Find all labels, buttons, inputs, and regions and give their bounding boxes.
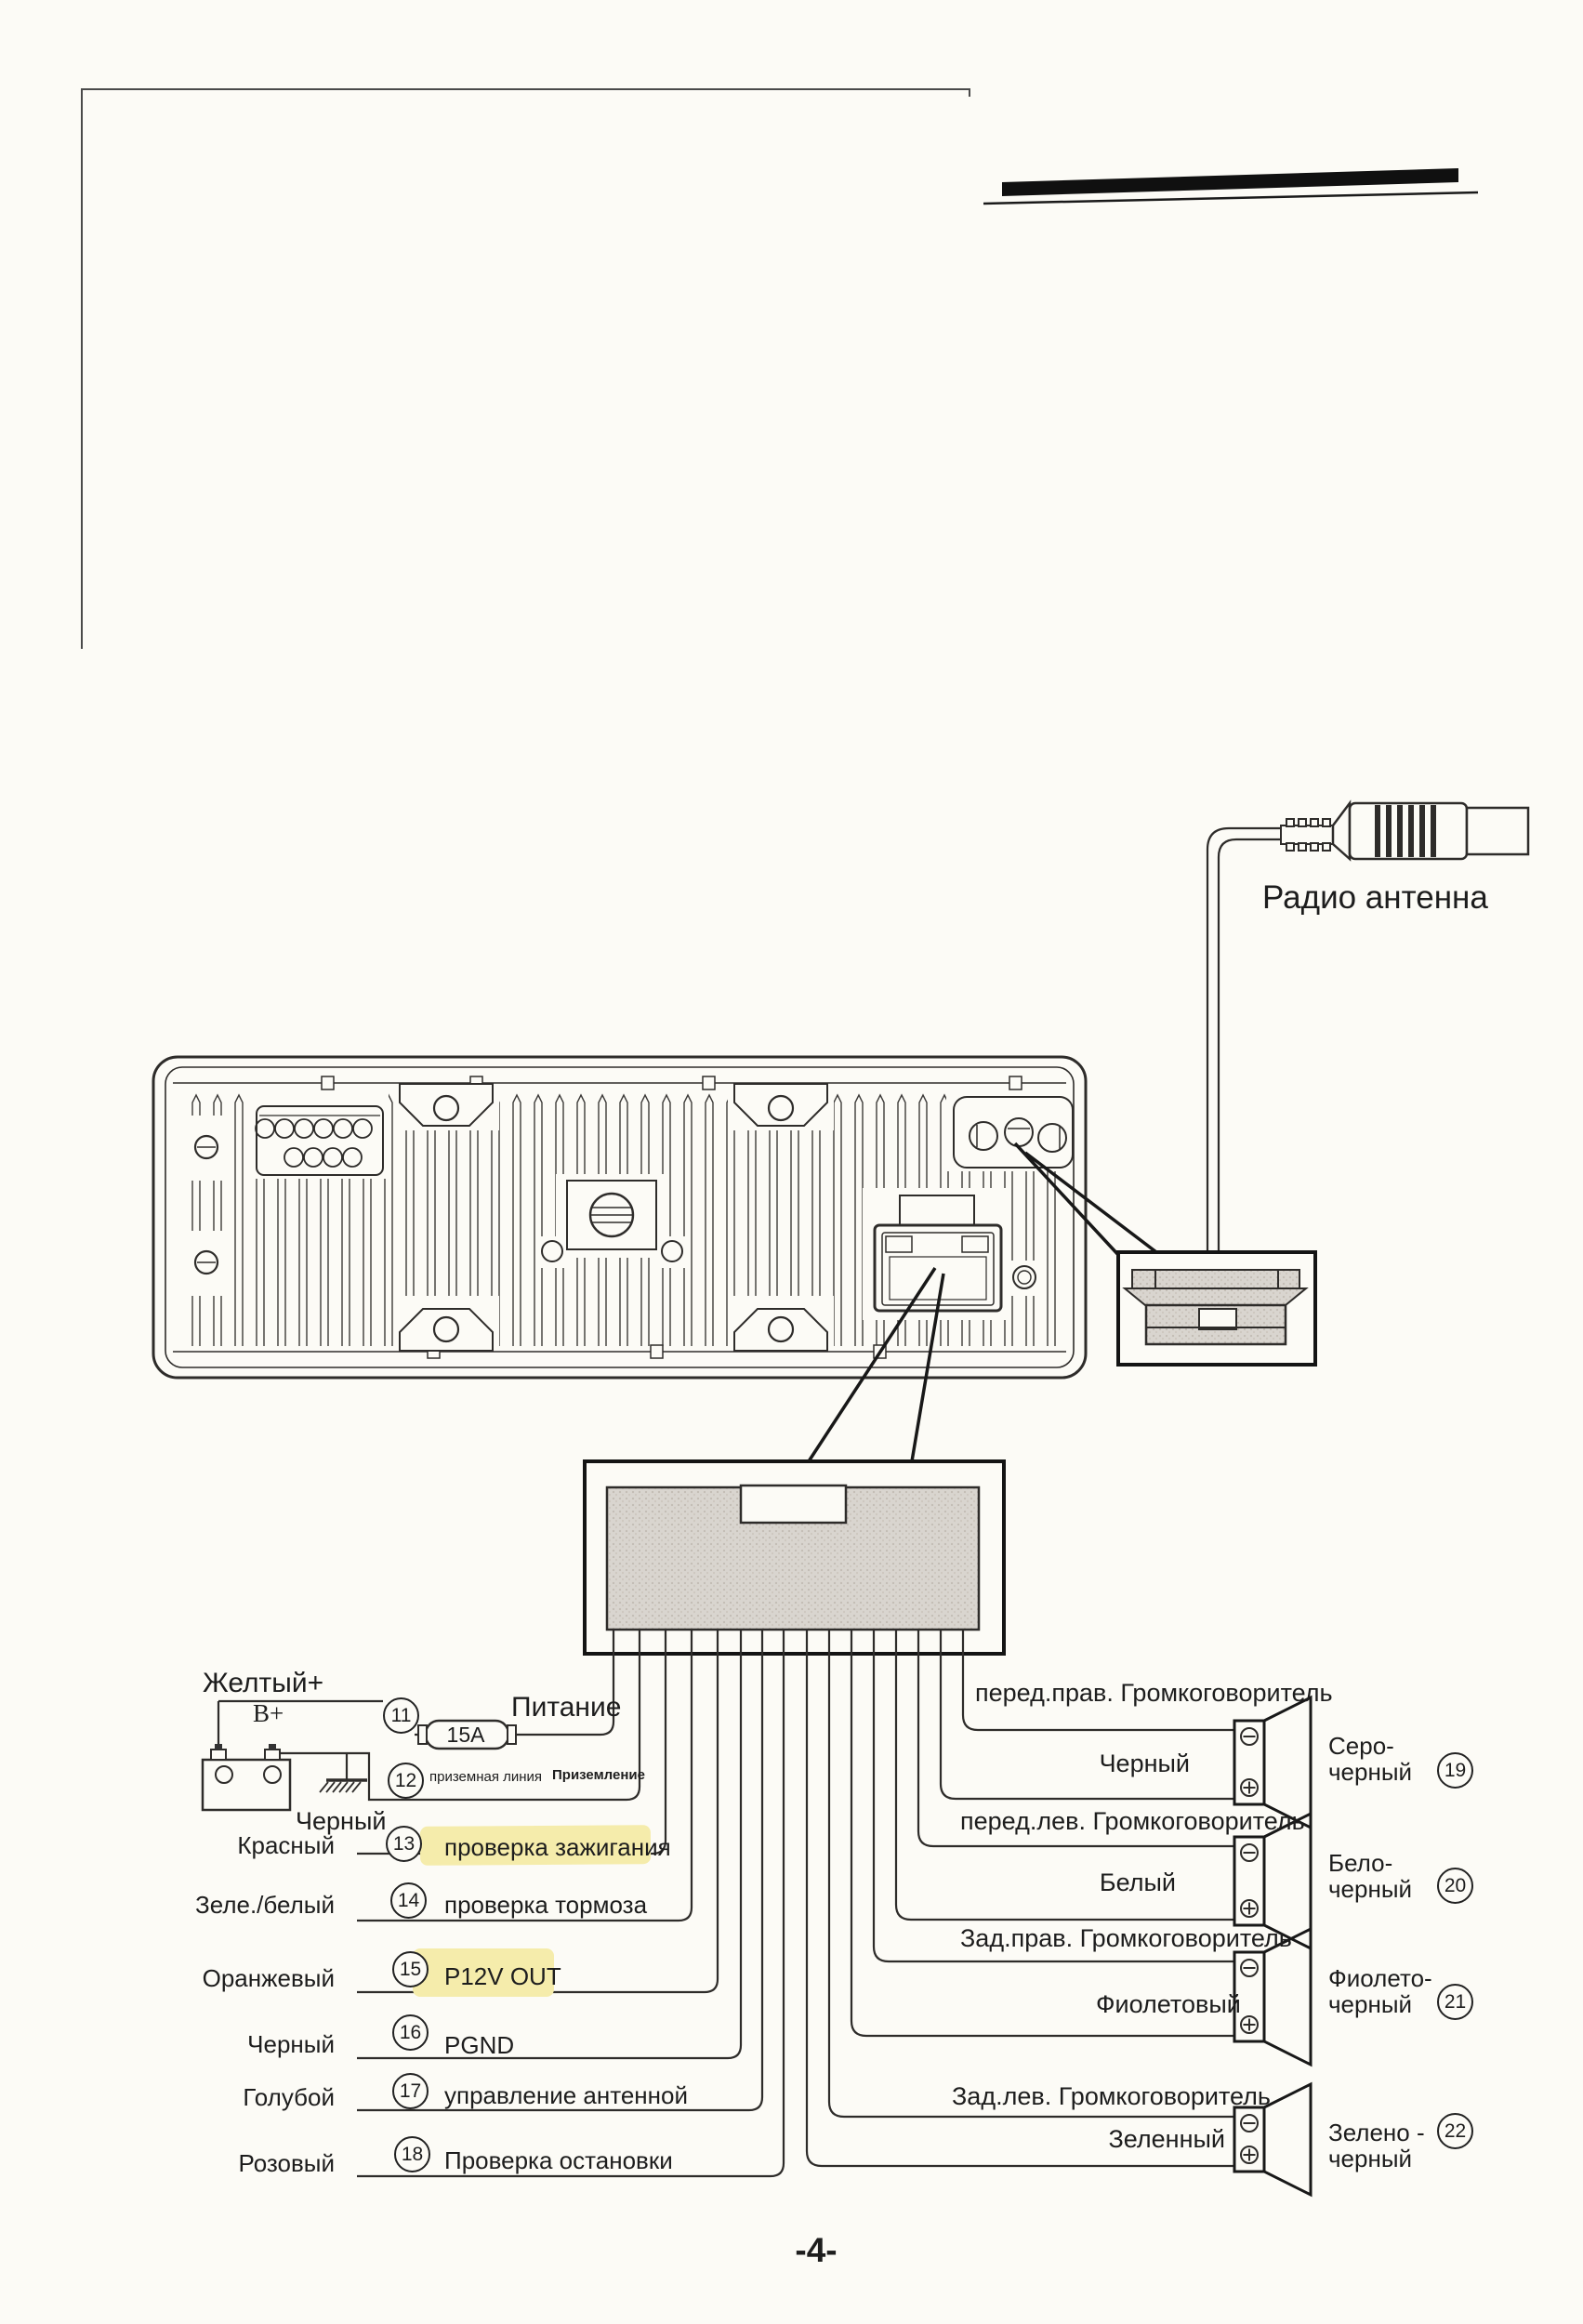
wire-number-22: 22 — [1437, 2113, 1473, 2149]
speaker-combo-22-line2: черный — [1328, 2146, 1425, 2172]
wire-color-17: Голубой — [181, 2083, 335, 2112]
fuse-rating-label: 15A — [433, 1723, 498, 1748]
wire-function-17: управление антенной — [444, 2081, 688, 2110]
battery-positive-wire-label: Желтый+ — [203, 1668, 323, 1699]
ground-line-label: приземная линия — [429, 1769, 542, 1785]
wire-color-16: Черный — [181, 2030, 335, 2059]
speaker-position-22: Зад.лев. Громкоговоритель — [952, 2082, 1271, 2111]
wire-number-21: 21 — [1437, 1984, 1473, 2020]
wire-function-18: Проверка остановки — [444, 2146, 673, 2175]
battery — [203, 1744, 290, 1810]
speaker-combo-color-21: Фиолето- черный — [1328, 1965, 1432, 2017]
power-function-label: Питание — [511, 1692, 621, 1723]
grounding-label: Приземление — [552, 1767, 645, 1783]
speaker-wire-color-21: Фиолетовый — [1096, 1990, 1217, 2019]
antenna-plug — [1281, 803, 1528, 859]
page-number: -4- — [779, 2231, 853, 2270]
blank-frame — [82, 89, 970, 649]
wire-number-14: 14 — [390, 1882, 427, 1919]
wire-number-19: 19 — [1437, 1752, 1473, 1789]
wire-function-14: проверка тормоза — [444, 1891, 647, 1920]
wire-function-15: P12V OUT — [444, 1962, 561, 1991]
header-rule — [983, 168, 1478, 204]
ground-symbol — [320, 1753, 367, 1792]
speaker-combo-color-22: Зелено - черный — [1328, 2119, 1425, 2172]
stereo-rear-panel — [153, 1057, 1086, 1378]
wire-number-15: 15 — [392, 1951, 429, 1987]
speaker-combo-color-20: Бело- черный — [1328, 1850, 1412, 1902]
speaker-combo-20-line2: черный — [1328, 1876, 1412, 1902]
speaker-combo-19-line1: Серо- — [1328, 1733, 1412, 1759]
speaker-combo-21-line1: Фиолето- — [1328, 1965, 1432, 1991]
speaker-wire-color-20: Белый — [1055, 1868, 1176, 1897]
wire-color-14: Зеле./белый — [181, 1891, 335, 1920]
speaker-wire-color-22: Зеленный — [1104, 2125, 1225, 2154]
manual-page: Желтый+ B+ 11 Питание 15A 12 приземная л… — [0, 0, 1583, 2324]
speaker-combo-21-line2: черный — [1328, 1991, 1432, 2017]
antenna-pointer-lines — [1015, 1143, 1160, 1257]
speaker-combo-20-line1: Бело- — [1328, 1850, 1412, 1876]
antenna-jack-box — [1118, 1252, 1315, 1365]
wire-number-11: 11 — [383, 1697, 419, 1734]
wire-color-13: Красный — [181, 1831, 335, 1860]
wire-function-16: PGND — [444, 2031, 514, 2060]
speaker-combo-22-line1: Зелено - — [1328, 2119, 1425, 2146]
wire-number-20: 20 — [1437, 1868, 1473, 1904]
wire-number-12: 12 — [388, 1763, 424, 1799]
wire-number-18: 18 — [394, 2136, 430, 2172]
speaker-position-20: перед.лев. Громкоговоритель — [960, 1807, 1305, 1836]
speaker-position-21: Зад.прав. Громкоговоритель — [960, 1924, 1292, 1953]
speaker-combo-color-19: Серо- черный — [1328, 1733, 1412, 1785]
battery-terminal-label: B+ — [253, 1699, 284, 1728]
speaker-position-19: перед.прав. Громкоговоритель — [975, 1679, 1333, 1708]
wire-number-13: 13 — [386, 1826, 422, 1862]
wire-color-18: Розовый — [181, 2149, 335, 2178]
antenna-label: Радио антенна — [1262, 879, 1488, 917]
wire-number-17: 17 — [392, 2073, 429, 2109]
wire-color-15: Оранжевый — [181, 1964, 335, 1993]
speaker-combo-19-line2: черный — [1328, 1759, 1412, 1785]
speaker-wire-color-19: Черный — [1069, 1750, 1190, 1778]
wire-number-16: 16 — [392, 2014, 429, 2051]
wire-function-13: проверка зажигания — [444, 1833, 671, 1862]
